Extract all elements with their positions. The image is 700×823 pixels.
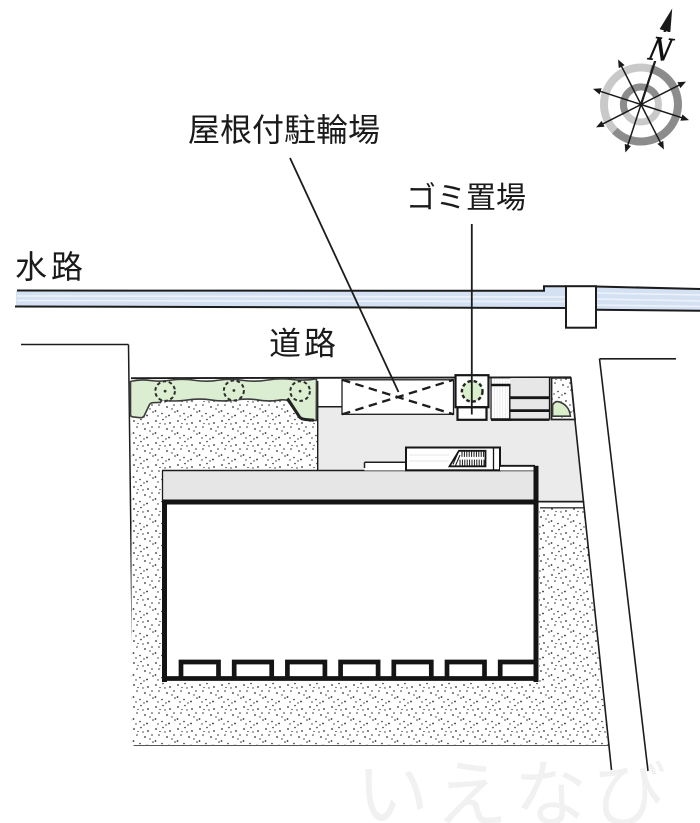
svg-text:いえなび: いえなび bbox=[356, 755, 672, 823]
svg-text:水路: 水路 bbox=[15, 249, 87, 285]
svg-text:屋根付駐輪場: 屋根付駐輪場 bbox=[188, 112, 380, 148]
svg-text:道路: 道路 bbox=[269, 326, 339, 362]
svg-text:ゴミ置場: ゴミ置場 bbox=[406, 182, 526, 215]
